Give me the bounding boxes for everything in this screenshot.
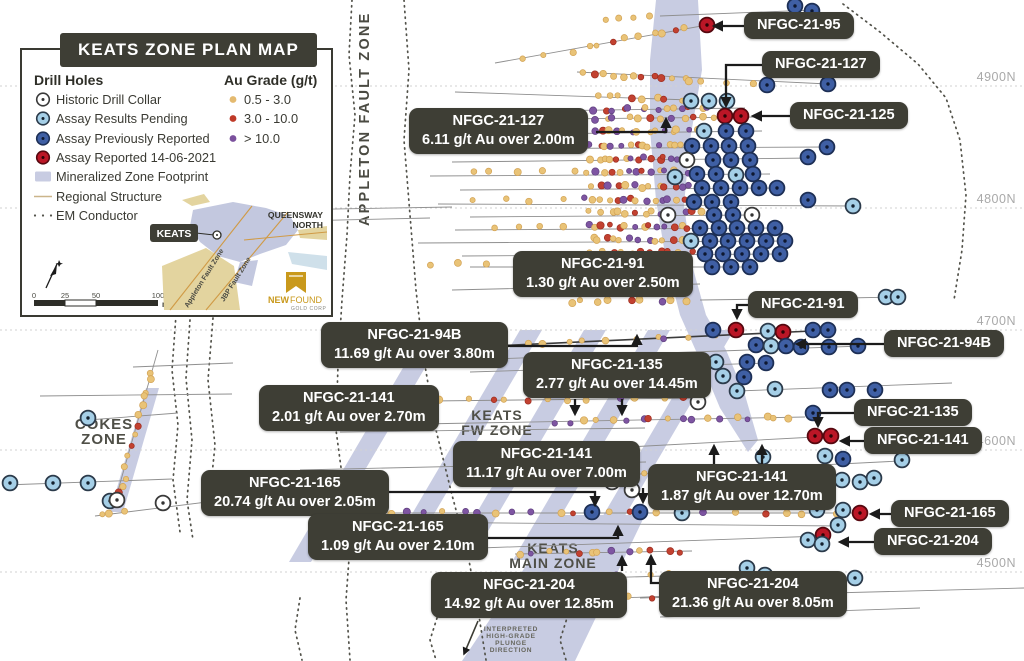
zone-label: ZONE [81,431,127,448]
callout-NFGC-141a: NFGC-21-1412.01 g/t Au over 2.70m [259,385,439,431]
svg-text:NORTH: NORTH [292,220,323,230]
grade-dot-icon [226,130,244,147]
callout-NFGC-125: NFGC-21-125 [790,102,908,129]
structure-icon [32,188,56,205]
grade-dot-icon [226,110,244,127]
legend-item-pending: Assay Results Pending [32,109,188,128]
au-grade-heading: Au Grade (g/t) [224,72,317,88]
queensway-north-label: QUEENSWAY [268,210,323,220]
historic-icon [32,91,56,108]
legend-item-label: Historic Drill Collar [56,92,161,107]
legend-item-label: Assay Reported 14-06-2021 [56,150,216,165]
legend-panel: KEATS ZONE PLAN MAP Drill Holes Au Grade… [20,48,333,317]
footprint-icon [32,168,56,185]
legend-item-au-1: 3.0 - 10.0 [226,109,298,128]
legend-item-footprint: Mineralized Zone Footprint [32,167,208,186]
newfound-logo-text: NEW [268,295,290,305]
legend-item-previous: Assay Previously Reported [32,129,210,148]
callout-NFGC-204a: NFGC-21-20414.92 g/t Au over 12.85m [431,572,627,618]
scale-tick: 50 [92,291,100,300]
callout-NFGC-127t: NFGC-21-127 [762,51,880,78]
drill-holes-heading: Drill Holes [34,72,103,88]
callout-NFGC-165a: NFGC-21-16520.74 g/t Au over 2.05m [201,470,389,516]
reported-icon [32,149,56,166]
callout-NFGC-141c: NFGC-21-1411.87 g/t Au over 12.70m [648,464,836,510]
grade-dot-icon [226,91,244,108]
grid-label-4600N: 4600N [977,434,1016,448]
grid-label-4500N: 4500N [977,556,1016,570]
grid-label-4900N: 4900N [977,70,1016,84]
legend-item-label: Mineralized Zone Footprint [56,169,208,184]
keats-inset-label: KEATS [157,228,192,240]
callout-NFGC-165l: NFGC-21-165 [891,500,1009,527]
legend-item-label: Assay Results Pending [56,111,188,126]
grid-label-4700N: 4700N [977,314,1016,328]
callout-NFGC-141l: NFGC-21-141 [864,427,982,454]
north-arrow-icon [32,256,72,294]
appleton-fault-zone-label: APPLETON FAULT ZONE [357,12,373,226]
logo-subtext: GOLD CORP [291,306,326,312]
svg-text:FOUND: FOUND [290,295,322,305]
legend-item-conductor: EM Conductor [32,206,138,225]
previous-icon [32,130,56,147]
callout-NFGC-94Bm: NFGC-21-94B11.69 g/t Au over 3.80m [321,322,508,368]
legend-item-historic: Historic Drill Collar [32,90,161,109]
plunge-note: PLUNGE [495,640,527,647]
plunge-note: HIGH-GRADE [486,633,536,640]
callout-NFGC-127m: NFGC-21-1276.11 g/t Au over 2.00m [409,108,588,154]
page-title: KEATS ZONE PLAN MAP [60,33,317,67]
plunge-note: DIRECTION [490,647,533,654]
inset-location-map: QUEENSWAYNORTHAppleton Fault ZoneJBP Fau… [148,190,329,312]
scale-tick: 0 [32,291,36,300]
newfound-logo-icon [286,272,306,293]
callout-NFGC-204l: NFGC-21-204 [874,528,992,555]
legend-item-reported: Assay Reported 14-06-2021 [32,148,216,167]
zone-label: KEATS [471,407,522,423]
callout-NFGC-94Bl: NFGC-21-94B [884,330,1004,357]
callout-NFGC-95: NFGC-21-95 [744,12,854,39]
legend-item-label: EM Conductor [56,208,138,223]
legend-item-label: Assay Previously Reported [56,131,210,146]
keats-plan-map: 4900N4800N4700N4600N4500NCOKESZONEKEATSF… [0,0,1024,661]
legend-item-au-2: > 10.0 [226,129,280,148]
callout-NFGC-165b: NFGC-21-1651.09 g/t Au over 2.10m [308,514,488,560]
callout-NFGC-204b: NFGC-21-20421.36 g/t Au over 8.05m [659,571,847,617]
legend-item-au-0: 0.5 - 3.0 [226,90,291,109]
scale-tick: 25 [61,291,69,300]
plunge-note: INTERPRETED [484,626,538,633]
callout-NFGC-135l: NFGC-21-135 [854,399,972,426]
legend-item-label: Regional Structure [56,189,162,204]
conductor-icon [32,207,56,224]
legend-item-structure: Regional Structure [32,187,162,206]
grid-label-4800N: 4800N [977,192,1016,206]
pending-icon [32,110,56,127]
callout-NFGC-135m: NFGC-21-1352.77 g/t Au over 14.45m [523,352,711,398]
callout-NFGC-141b: NFGC-21-14111.17 g/t Au over 7.00m [453,441,640,487]
callout-NFGC-91m: NFGC-21-911.30 g/t Au over 2.50m [513,251,693,297]
callout-NFGC-91l: NFGC-21-91 [748,291,858,318]
